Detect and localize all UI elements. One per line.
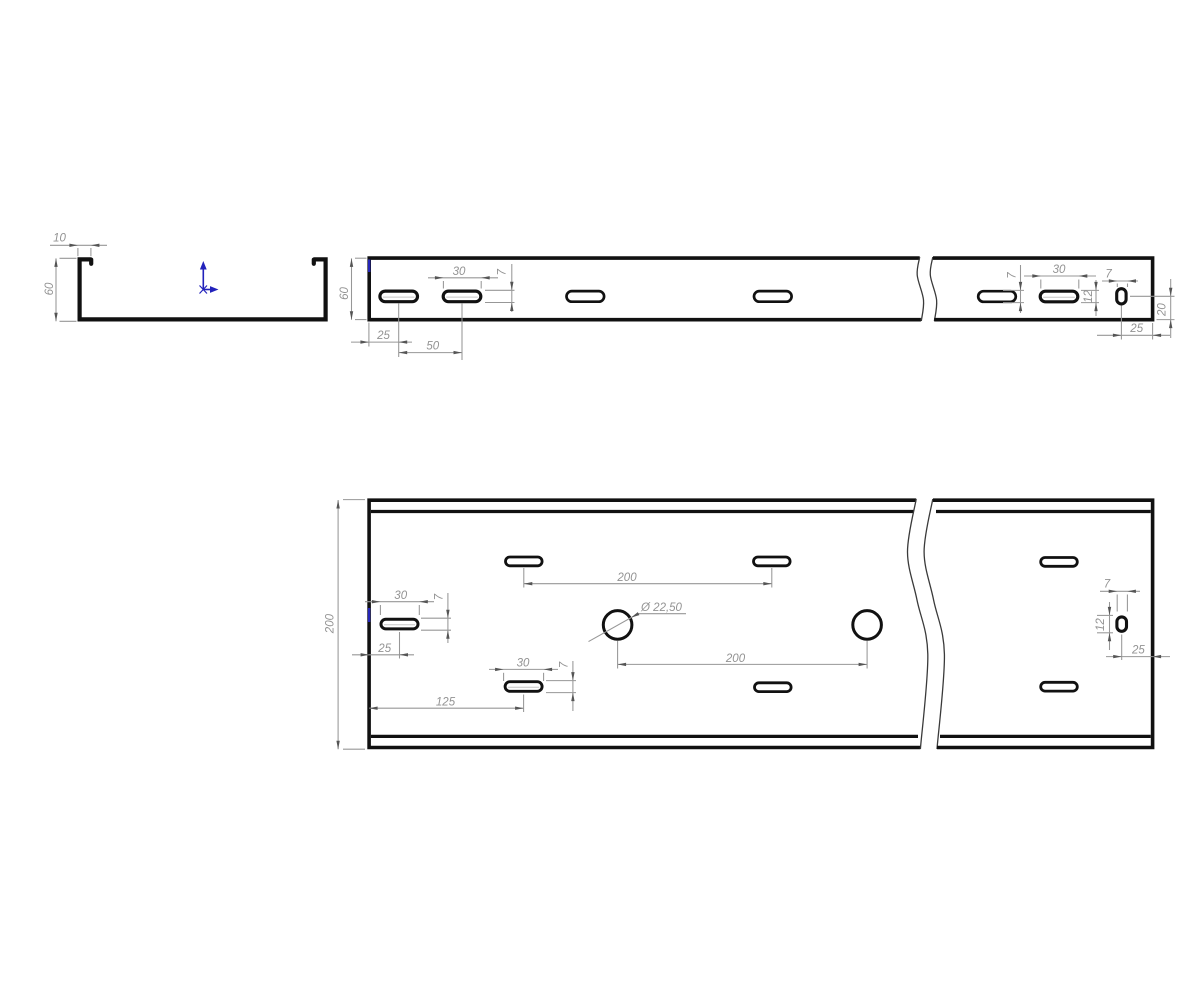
svg-text:7: 7 [433, 593, 445, 600]
svg-text:200: 200 [725, 653, 746, 665]
svg-text:7: 7 [558, 661, 570, 668]
svg-text:12: 12 [1095, 618, 1107, 631]
svg-text:200: 200 [325, 613, 337, 634]
svg-text:60: 60 [44, 282, 56, 295]
svg-text:30: 30 [394, 590, 407, 602]
svg-text:50: 50 [426, 341, 439, 353]
svg-text:60: 60 [339, 287, 351, 300]
svg-text:25: 25 [377, 643, 391, 655]
svg-text:30: 30 [453, 266, 466, 278]
svg-text:7: 7 [496, 269, 508, 276]
svg-text:25: 25 [1129, 323, 1143, 335]
svg-text:12: 12 [1083, 290, 1095, 303]
svg-text:125: 125 [436, 696, 456, 708]
svg-text:200: 200 [616, 572, 637, 584]
svg-text:10: 10 [53, 233, 66, 245]
svg-text:20: 20 [1157, 303, 1169, 317]
svg-text:7: 7 [1007, 272, 1019, 279]
svg-text:30: 30 [517, 658, 530, 670]
svg-text:25: 25 [1131, 645, 1145, 657]
svg-text:7: 7 [1105, 268, 1112, 280]
svg-text:7: 7 [1104, 579, 1111, 591]
svg-text:30: 30 [1053, 264, 1066, 276]
svg-text:Ø 22,50: Ø 22,50 [640, 602, 683, 614]
svg-text:25: 25 [376, 330, 390, 342]
